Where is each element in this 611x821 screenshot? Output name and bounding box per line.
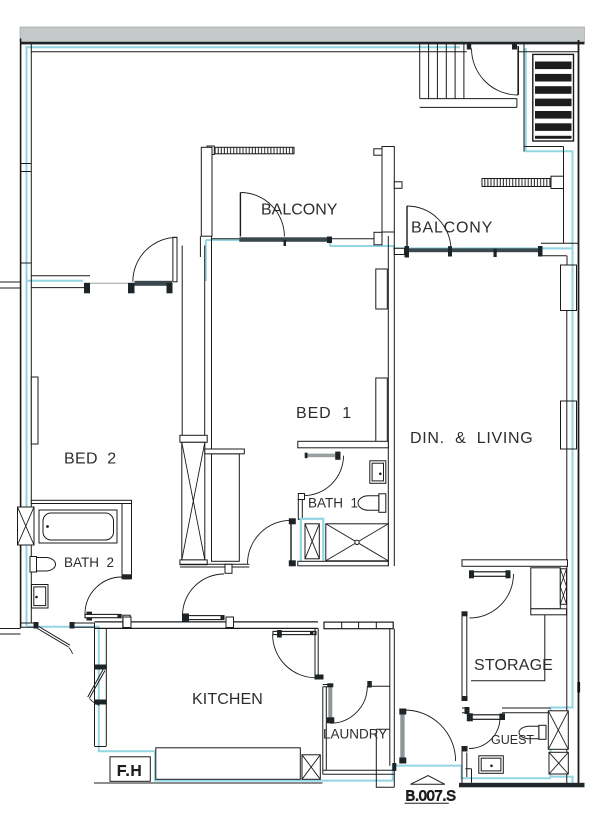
svg-text:GUEST: GUEST xyxy=(491,733,534,747)
svg-text:BATH 1: BATH 1 xyxy=(308,496,358,511)
svg-text:BALCONY: BALCONY xyxy=(411,220,493,237)
svg-text:F.H: F.H xyxy=(117,763,143,780)
svg-text:DIN. & LIVING: DIN. & LIVING xyxy=(410,430,533,447)
svg-text:BATH 2: BATH 2 xyxy=(64,555,114,570)
svg-text:BALCONY: BALCONY xyxy=(261,202,338,219)
svg-text:BED 1: BED 1 xyxy=(296,405,352,422)
svg-text:STORAGE: STORAGE xyxy=(474,657,553,674)
svg-text:B.007.S: B.007.S xyxy=(406,789,456,805)
svg-text:KITCHEN: KITCHEN xyxy=(192,691,263,708)
svg-text:BED 2: BED 2 xyxy=(64,451,117,468)
svg-text:LAUNDRY: LAUNDRY xyxy=(323,727,387,742)
